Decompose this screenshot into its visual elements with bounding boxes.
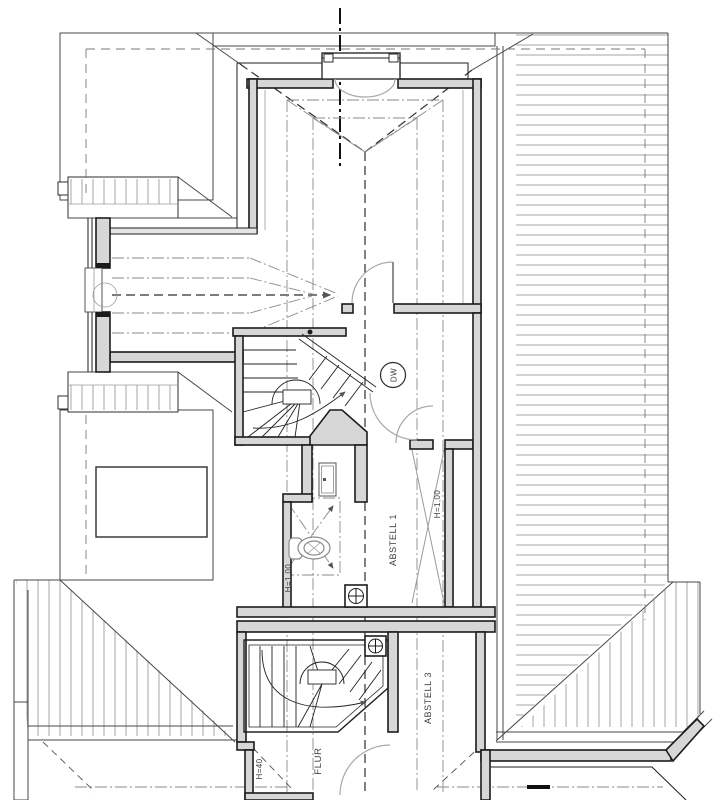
washbasin-symbol [319, 463, 336, 496]
door-swing-arc-top-room [352, 262, 393, 303]
dormer-upper-left [58, 177, 237, 218]
roof-planes [14, 33, 712, 800]
roof-eave-top [213, 33, 495, 46]
label-flur: FLUR [313, 747, 324, 774]
label-h100-bath: H=1,00 [284, 564, 293, 593]
label-abstell-1: ABSTELL 1 [388, 514, 398, 566]
label-h100-abstell: H=1,00 [433, 490, 442, 519]
roof-plane-top-left [60, 33, 213, 200]
label-dw: DW [390, 368, 399, 382]
skylight [96, 467, 207, 537]
wc-toilet-symbol [289, 537, 330, 559]
label-abstell-3: ABSTELL 3 [423, 672, 433, 724]
party-wall-band [237, 607, 495, 617]
roof-plane-bottom-left [16, 580, 231, 736]
door-swing-arc-corridor [370, 393, 417, 440]
floor-drain-symbol [345, 585, 367, 607]
label-h40: H=40 [255, 758, 264, 779]
dormer-lower-left [58, 372, 232, 412]
roof-window-swing [322, 53, 400, 97]
floor-plan-svg: DW ABSTELL 1 H=1,00 H=1,00 ABSTELL 3 FLU… [0, 0, 726, 800]
floor-plan-sheet: DW ABSTELL 1 H=1,00 H=1,00 ABSTELL 3 FLU… [0, 0, 726, 800]
roof-eave-bottom-left [14, 702, 28, 800]
floor-drain-symbol [365, 636, 386, 656]
